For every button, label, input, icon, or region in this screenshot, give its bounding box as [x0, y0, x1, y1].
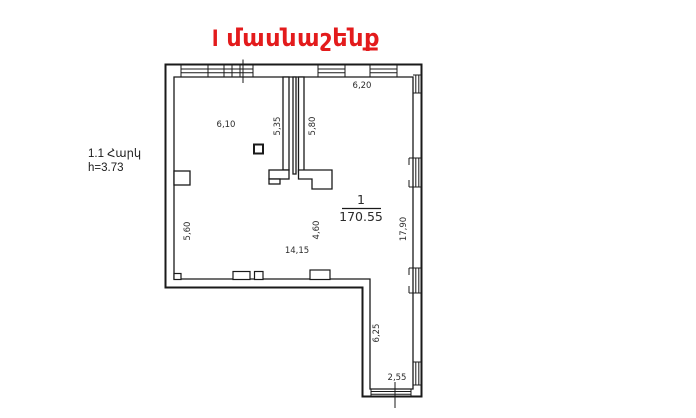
dim-corridor-width: 2,55 — [388, 373, 407, 383]
dim-mid-height: 4,60 — [312, 221, 322, 240]
dim-hall-width: 14,15 — [285, 246, 309, 256]
dim-left-wall: 5,60 — [183, 222, 193, 241]
room-label: 1 170.55 — [339, 192, 383, 224]
floor-label: 1.1 Հարկ — [88, 147, 141, 161]
floor-height-label: h=3.73 — [88, 161, 141, 175]
corridor-bottom-window — [371, 389, 411, 397]
dim-top-right-room: 6,20 — [353, 81, 372, 91]
floor-plan-drawing: 6,10 5,35 5,80 6,20 5,60 4,60 14,15 17,9… — [0, 0, 696, 418]
floor-plan-page: I մասնաշենք 1.1 Հարկ h=3.73 — [0, 0, 696, 418]
building-title: I մասնաշենք — [212, 24, 380, 53]
room-area: 170.55 — [339, 209, 383, 224]
column-square — [254, 145, 263, 154]
bottom-wall-pilasters — [174, 270, 330, 280]
dim-right-wall: 17,90 — [399, 217, 409, 241]
floor-info: 1.1 Հարկ h=3.73 — [88, 147, 141, 175]
top-windows — [181, 65, 397, 78]
right-windows — [409, 75, 422, 385]
dim-partition-left: 5,35 — [273, 117, 283, 136]
room-number: 1 — [357, 192, 365, 207]
dim-top-left-room: 6,10 — [217, 120, 236, 130]
dim-corridor-height: 6,25 — [372, 324, 382, 343]
dim-partition-right: 5,80 — [308, 117, 318, 136]
